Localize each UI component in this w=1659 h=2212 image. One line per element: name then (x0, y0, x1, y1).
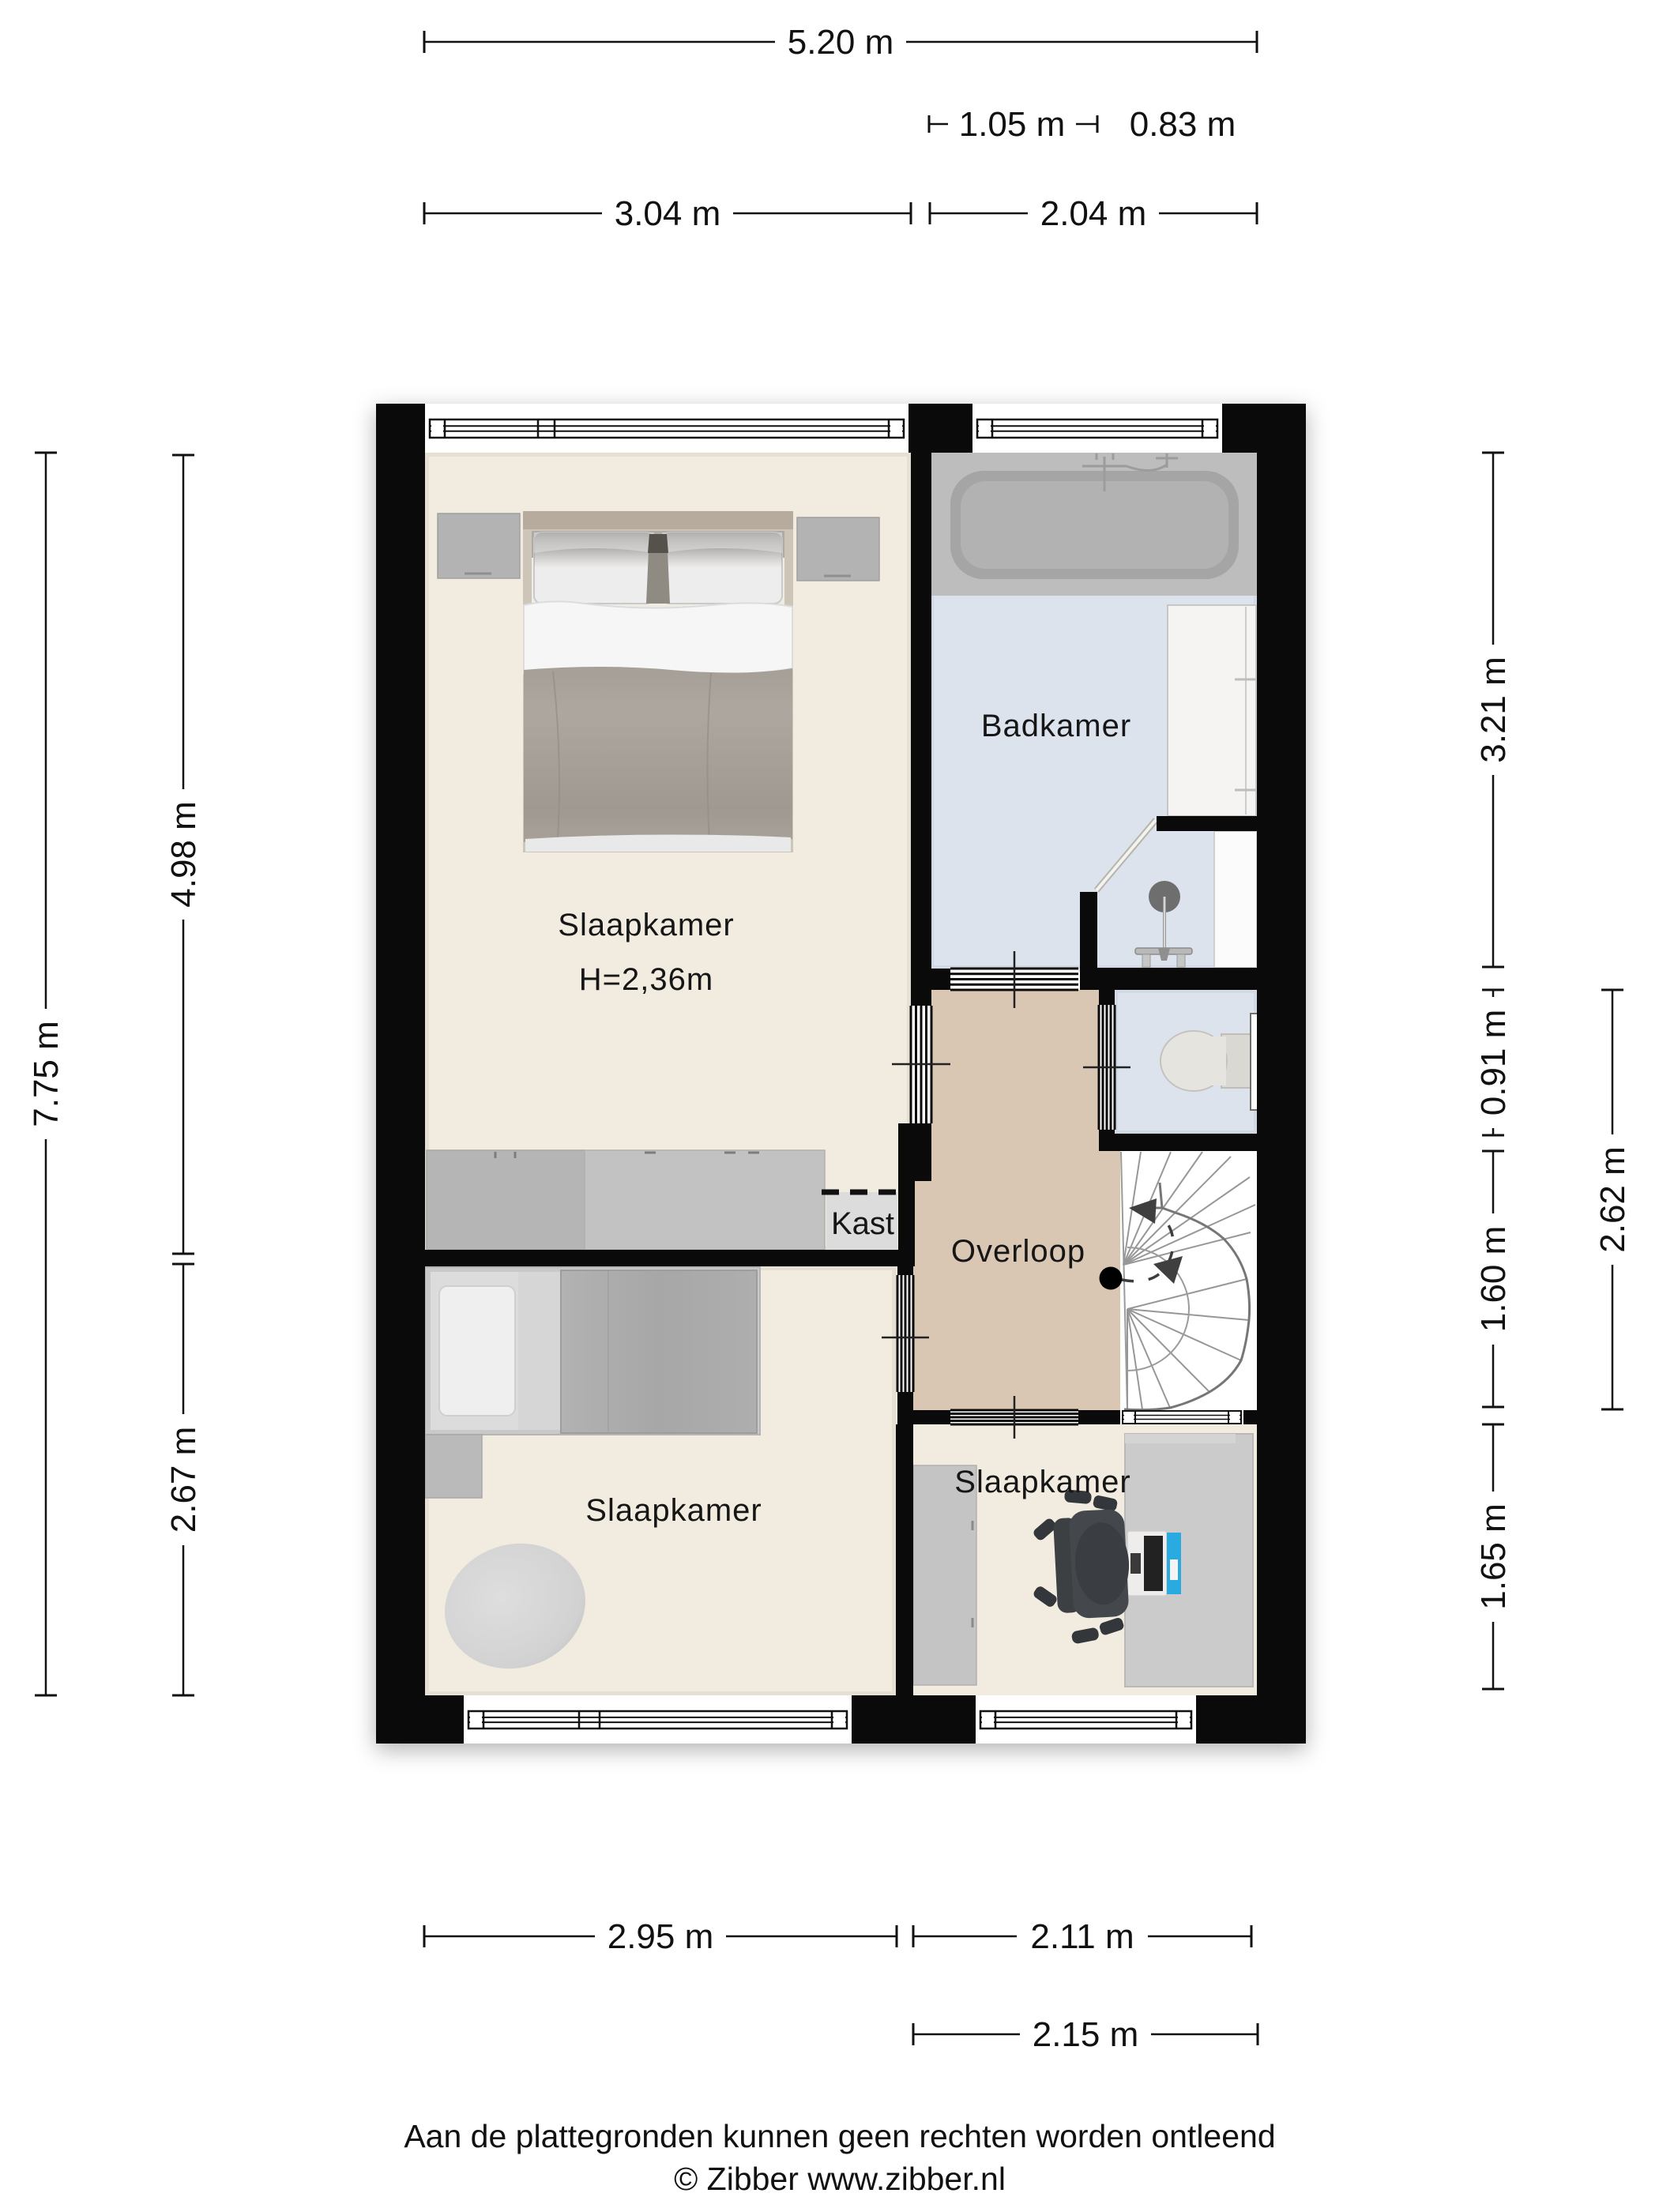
svg-text:7.75 m: 7.75 m (27, 1021, 66, 1127)
svg-text:© Zibber www.zibber.nl: © Zibber www.zibber.nl (674, 2161, 1006, 2197)
svg-text:2.11 m: 2.11 m (1030, 1917, 1134, 1956)
svg-text:H=2,36m: H=2,36m (579, 962, 713, 997)
svg-text:0.91 m: 0.91 m (1474, 1010, 1513, 1116)
svg-text:2.67 m: 2.67 m (164, 1427, 203, 1533)
svg-text:Slaapkamer: Slaapkamer (585, 1493, 762, 1528)
svg-text:4.98 m: 4.98 m (164, 801, 203, 908)
svg-text:2.15 m: 2.15 m (1033, 2015, 1139, 2054)
svg-text:1.60 m: 1.60 m (1474, 1226, 1513, 1333)
svg-text:Aan de plattegronden kunnen ge: Aan de plattegronden kunnen geen rechten… (404, 2118, 1275, 2154)
svg-text:Slaapkamer: Slaapkamer (558, 908, 734, 942)
svg-text:Badkamer: Badkamer (981, 709, 1131, 743)
svg-text:2.95 m: 2.95 m (608, 1917, 714, 1956)
svg-text:Slaapkamer: Slaapkamer (954, 1465, 1130, 1499)
svg-text:2.04 m: 2.04 m (1040, 194, 1147, 233)
svg-text:Overloop: Overloop (951, 1234, 1085, 1269)
svg-text:Kast: Kast (831, 1206, 894, 1241)
svg-text:3.21 m: 3.21 m (1474, 656, 1513, 763)
svg-text:0.83 m: 0.83 m (1130, 105, 1236, 144)
svg-text:1.65 m: 1.65 m (1474, 1503, 1513, 1610)
svg-text:1.05 m: 1.05 m (959, 105, 1066, 144)
svg-text:5.20 m: 5.20 m (788, 23, 894, 62)
svg-text:3.04 m: 3.04 m (615, 194, 721, 233)
svg-text:2.62 m: 2.62 m (1593, 1146, 1632, 1253)
